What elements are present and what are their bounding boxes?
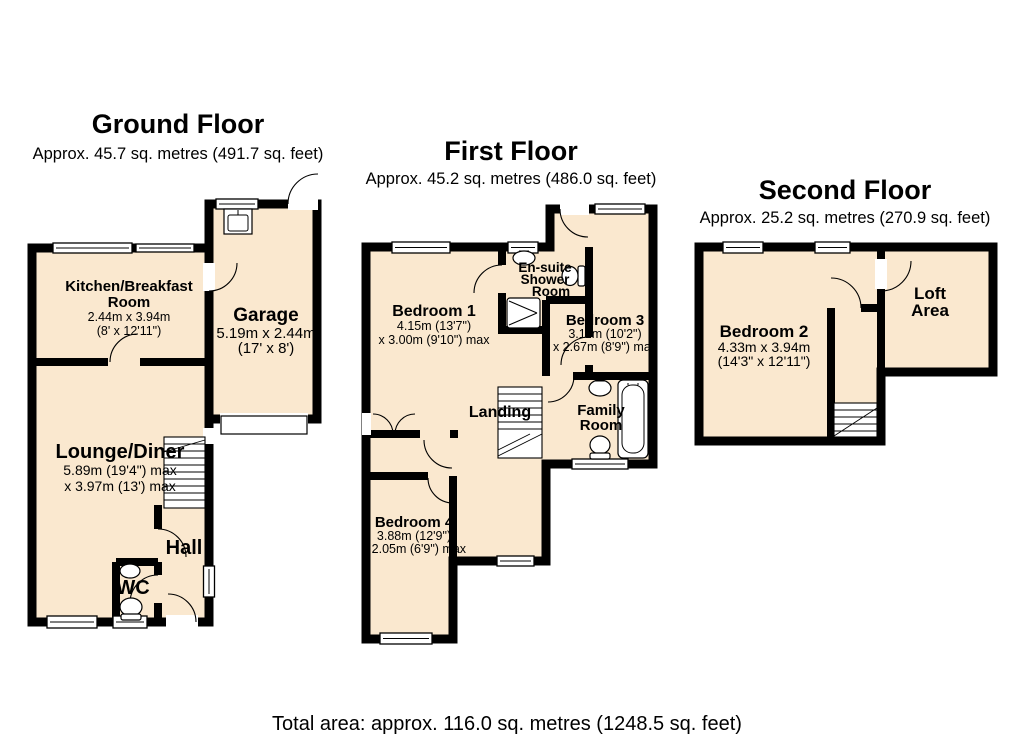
garage-dims-2: (17' x 8') xyxy=(238,340,295,357)
hall-label: Hall xyxy=(166,537,203,559)
wc-toilet-icon xyxy=(120,598,142,620)
family-sink-icon xyxy=(589,380,611,396)
shower-icon xyxy=(507,298,540,328)
bedroom3-window xyxy=(595,204,645,214)
garage-top-door-gap xyxy=(288,198,318,210)
landing-window xyxy=(497,556,534,566)
second-floor-stairs xyxy=(834,403,877,437)
bedroom1-window xyxy=(392,242,450,253)
first-floor-area: Approx. 45.2 sq. metres (486.0 sq. feet) xyxy=(366,170,657,188)
bedroom4-window xyxy=(380,633,432,644)
hall-window xyxy=(204,566,215,597)
kitchen-dims: 2.44m x 3.94m xyxy=(88,310,171,324)
garage-side-door-gap xyxy=(203,263,215,291)
bedroom4-dims-2: x 2.05m (6'9") max xyxy=(362,542,467,556)
family-room-label-2: Room xyxy=(580,417,623,434)
kitchen-dims-2: (8' x 12'11") xyxy=(97,324,162,338)
garage-vehicle-door xyxy=(221,416,307,434)
bedroom3-dims-2: x 2.67m (8'9") max xyxy=(553,340,658,354)
first-floor-title: First Floor xyxy=(444,136,578,166)
floorplan-canvas: Ground Floor Approx. 45.7 sq. metres (49… xyxy=(0,0,1024,744)
total-area-text: Total area: approx. 116.0 sq. metres (12… xyxy=(272,713,742,735)
bedroom4-dims: 3.88m (12'9") xyxy=(377,529,451,543)
wc-sink-icon xyxy=(120,564,140,578)
bedroom1-dims-2: x 3.00m (9'10") max xyxy=(378,333,490,347)
family-toilet-icon xyxy=(590,436,610,459)
ensuite-label-3: Room xyxy=(532,284,570,299)
first-floor-plan: First Floor Approx. 45.2 sq. metres (486… xyxy=(362,136,658,644)
bedroom2-window xyxy=(723,242,763,253)
kitchen-window xyxy=(53,243,132,253)
lounge-label: Lounge/Diner xyxy=(56,441,185,463)
wc-label: WC xyxy=(116,577,149,599)
garage-sink-icon xyxy=(224,209,252,234)
kitchen-label-2: Room xyxy=(108,294,151,311)
bath-icon xyxy=(618,380,648,458)
wardrobe-recess xyxy=(362,413,371,435)
loft-door-gap xyxy=(875,259,887,289)
bedroom3-dims: 3.11m (10'2") xyxy=(568,327,641,341)
lounge-dims: 5.89m (19'4") max xyxy=(63,462,176,478)
landing-label: Landing xyxy=(469,404,531,421)
floorplan-page: Ground Floor Approx. 45.7 sq. metres (49… xyxy=(0,0,1024,744)
garage-window xyxy=(216,199,258,209)
kitchen-window-2 xyxy=(136,244,194,252)
kitchen-label: Kitchen/Breakfast xyxy=(65,278,193,295)
family-room-window xyxy=(572,459,628,469)
lounge-window xyxy=(47,616,97,628)
ground-floor-plan: Ground Floor Approx. 45.7 sq. metres (49… xyxy=(32,109,323,629)
second-floor-plan: Second Floor Approx. 25.2 sq. metres (27… xyxy=(699,175,993,441)
ground-floor-area: Approx. 45.7 sq. metres (491.7 sq. feet) xyxy=(33,145,324,163)
first-floor-stairs xyxy=(498,387,542,458)
bedroom1-label: Bedroom 1 xyxy=(392,303,476,320)
loft-label-2: Area xyxy=(911,301,949,320)
second-floor-title: Second Floor xyxy=(759,175,932,205)
ground-floor-title: Ground Floor xyxy=(92,109,265,139)
bedroom3-top-door-gap xyxy=(560,203,589,215)
second-floor-area: Approx. 25.2 sq. metres (270.9 sq. feet) xyxy=(700,209,991,227)
front-door-gap xyxy=(166,615,198,629)
bedroom1-dims: 4.15m (13'7") xyxy=(397,319,471,333)
bedroom2-dims-2: (14'3" x 12'11") xyxy=(718,353,811,369)
bedroom2-window-2 xyxy=(815,242,850,253)
lounge-dims-2: x 3.97m (13') max xyxy=(64,478,176,494)
garage-label: Garage xyxy=(233,305,298,326)
